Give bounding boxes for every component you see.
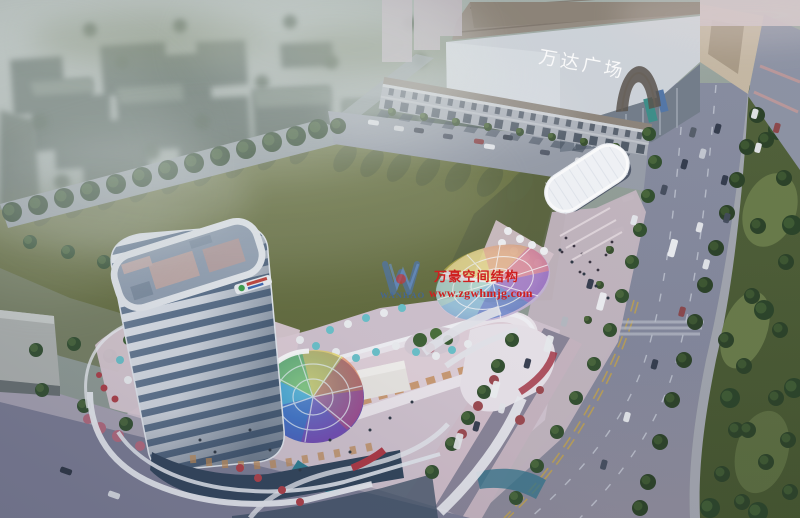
svg-text:万豪空间结构: 万豪空间结构 [433,269,519,284]
svg-text:www.zgwhmjg.com: www.zgwhmjg.com [429,286,533,300]
svg-text:WANHAO: WANHAO [380,290,425,300]
